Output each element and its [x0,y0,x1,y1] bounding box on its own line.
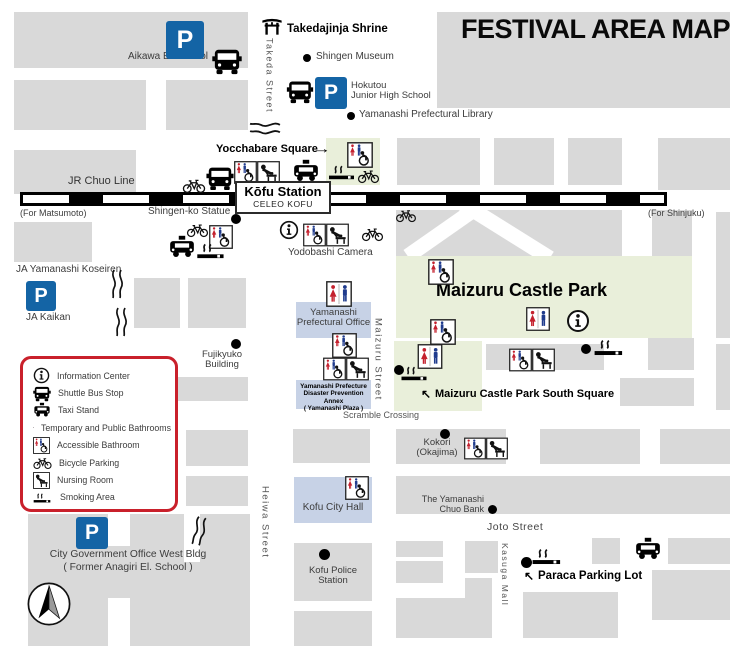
legend-label: Nursing Room [57,475,113,485]
bicycle-parking-icon [395,207,417,223]
accessible-bathroom-icon [344,476,370,500]
road-continues-wave-icon [108,268,126,300]
prefectural-office-label: Yamanashi Prefectural Office [296,308,371,329]
accessible-bathroom-icon [428,258,454,286]
smoking-area-icon [531,544,565,566]
accessible-bathroom-icon [323,356,346,382]
jr-chuo-line-label: JR Chuo Line [68,176,135,188]
street [108,598,130,646]
police-dot [319,549,330,560]
city-hall-label: Kofu City Hall [296,503,370,514]
shingen-statue-label: Shingen-ko Statue [148,207,230,218]
smoking-area-icon [196,239,228,260]
taxi-icon [292,159,320,183]
bicycle-icon [33,455,52,470]
smoking-area-icon [328,161,358,181]
parking-icon: P [315,77,347,109]
right-arrow: → [312,141,332,156]
map-block [396,598,492,638]
map-block [166,80,248,130]
road-continues-wave-icon [249,118,281,138]
shuttle-bus-icon [33,385,51,402]
smoking-area-icon [592,335,628,357]
city-gov-office-label-1: City Government Office West Bldg [20,549,236,560]
legend-label: Information Center [57,371,130,381]
jr-chuo-line-rail-left [20,192,237,206]
annex-label: Yamanashi Prefecture Disaster Prevention… [296,383,371,412]
bicycle-parking-icon [357,167,380,184]
maizuru-park-label: Maizuru Castle Park [436,281,607,300]
jr-chuo-line-rail-right [317,192,667,206]
legend-label: Taxi Stand [58,405,99,415]
taxi-icon [168,235,196,259]
hokutou-school-label-2: Junior High School [351,91,431,101]
legend-item: Smoking Area [33,489,171,506]
map-block [396,541,443,557]
bathroom-icon [33,419,34,436]
map-block [396,561,443,583]
legend-label: Accessible Bathroom [57,440,140,450]
map-block [568,138,622,185]
parking-icon: P [26,281,56,311]
yodobashi-camera-label: Yodobashi Camera [288,248,373,259]
legend-label: Temporary and Public Bathrooms [41,423,171,433]
compass-north-icon [26,581,72,627]
shuttle-bus-icon [211,47,243,75]
south-square-label: Maizuru Castle Park South Square [435,389,614,401]
map-block [652,570,730,620]
police-label: Kofu Police Station [295,566,371,587]
map-block [134,278,180,328]
shuttle-bus-icon [206,165,234,191]
road-continues-wave-icon [112,306,130,338]
bathroom-icon [526,305,550,333]
map-block [668,538,730,564]
legend-item: Shuttle Bus Stop [33,384,171,401]
information-center-icon [566,309,590,333]
kasuga-mall-label: Kasuga Mall [500,543,509,607]
nursing-room-icon [326,222,349,248]
joto-street-label: Joto Street [487,522,543,533]
map-block [293,429,370,463]
scramble-crossing-label: Scramble Crossing [343,411,419,421]
maizuru-street-label: Maizuru Street [372,318,382,394]
legend-item: Temporary and Public Bathrooms [33,419,171,436]
up-left-arrow: ↖ [524,569,534,583]
chuo-bank-label-2: Chuo Bank [439,504,484,514]
annex-label-2: Disaster Prevention Annex [303,390,363,404]
kokori-label-2: (Okajima) [416,447,457,458]
shingen-museum-dot [303,54,311,62]
legend-item: Bicycle Parking [33,454,171,471]
legend-item: Accessible Bathroom [33,437,171,454]
map-block [592,538,620,564]
street [108,514,130,546]
map-block [294,611,372,646]
smoking-area-icon [400,362,431,382]
legend-item: Taxi Stand [33,402,171,419]
information-center-icon [279,220,299,240]
prefectural-office-label-2: Prefectural Office [297,317,370,328]
shingen-statue-dot [231,214,241,224]
up-left-arrow: ↖ [421,387,431,401]
map-block [175,377,248,401]
legend-label: Bicycle Parking [59,458,119,468]
parking-icon: P [76,517,108,549]
accessible-bathroom-icon [464,436,486,461]
for-shinjuku-label: (For Shinjuku) [648,209,705,219]
accessible-bathroom-icon [303,222,326,248]
map-block [523,592,618,638]
legend-item: Nursing Room [33,471,171,488]
chuo-bank-dot [488,505,497,514]
festival-area-map: FESTIVAL AREA MAP P Aikawa El. School Ta… [0,0,740,656]
accessible-bathroom-icon [509,347,532,373]
for-matsumoto-label: (For Matsumoto) [20,209,87,219]
nursing-room-icon [532,347,555,373]
map-block [465,541,498,573]
street [694,206,716,416]
shuttle-bus-icon [286,79,314,104]
nursing-room-icon [486,436,508,461]
page-title: FESTIVAL AREA MAP [430,14,730,45]
city-gov-office-label-2: ( Former Anagiri El. School ) [20,562,236,573]
bathroom-icon [325,281,353,307]
paraca-parking-label: Paraca Parking Lot [538,570,642,582]
taxi-icon [634,537,662,561]
accessible-bathroom-icon [33,437,50,454]
map-block [14,80,146,130]
torii-shrine-icon [261,15,283,36]
map-block [660,429,730,464]
parking-icon: P [166,21,204,59]
legend-label: Shuttle Bus Stop [58,388,124,398]
takedajinja-shrine-label: Takedajinja Shrine [287,23,388,35]
kofu-station-label: Kōfu Station [242,185,324,199]
chuo-bank-label: The Yamanashi Chuo Bank [420,495,484,514]
map-block [14,222,92,262]
legend-box: Information Center Shuttle Bus Stop Taxi… [20,356,178,512]
legend-item: Information Center [33,367,171,384]
accessible-bathroom-icon [332,333,357,358]
map-block [658,138,730,190]
map-block [540,429,640,464]
map-block [188,278,246,328]
map-block [186,476,248,506]
ja-koseiren-label: JA Yamanashi Koseiren [16,265,121,276]
fujikyuko-dot [231,339,241,349]
heiwa-street-label: Heiwa Street [259,486,269,580]
kofu-station-box: Kōfu Station CELEO KOFU [235,181,331,214]
annex-label-1: Yamanashi Prefecture [300,383,367,390]
smoking-area-dot [581,344,591,354]
smoking-icon [33,490,53,504]
nursing-room-icon [346,356,369,382]
ja-kaikan-label: JA Kaikan [26,313,70,324]
nursing-room-icon [33,472,50,489]
accessible-bathroom-icon [430,318,456,346]
celeo-kofu-label: CELEO KOFU [242,199,324,209]
map-block [397,138,480,185]
info-icon [33,367,50,384]
legend-label: Smoking Area [60,492,115,502]
fujikyuko-label-2: Building [205,359,239,370]
chuo-bank-label-1: The Yamanashi [422,494,484,504]
takeda-street-label: Takeda Street [264,38,274,108]
fujikyuko-label: Fujikyuko Building [196,350,248,371]
bicycle-parking-icon [182,176,206,194]
map-block [494,138,554,185]
library-dot [347,112,355,120]
map-block [186,430,248,466]
shingen-museum-label: Shingen Museum [316,52,394,63]
library-label: Yamanashi Prefectural Library [359,110,493,121]
kokori-label: Kokori (Okajima) [408,438,466,459]
taxi-icon [33,402,51,418]
yocchabare-square-label: Yocchabare Square [216,144,318,156]
bicycle-parking-icon [361,225,384,242]
